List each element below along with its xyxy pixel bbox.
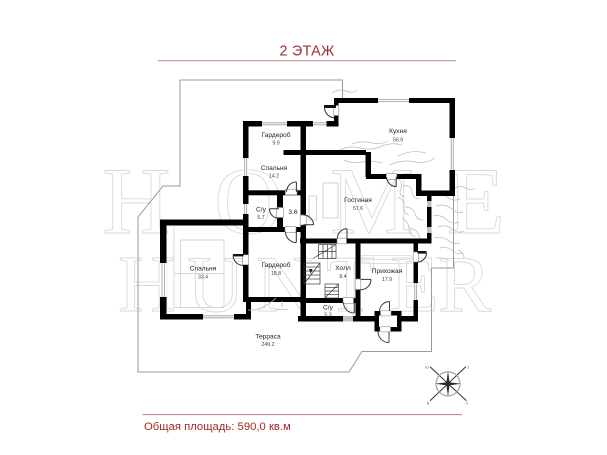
svg-text:С/у: С/у [323, 305, 334, 312]
svg-text:Гардероб: Гардероб [261, 261, 290, 269]
svg-text:8.4: 8.4 [339, 274, 346, 280]
svg-text:R: R [438, 241, 492, 329]
svg-text:Холл: Холл [335, 265, 351, 272]
svg-text:Гардероб: Гардероб [261, 131, 290, 139]
svg-text:56.9: 56.9 [393, 138, 403, 144]
svg-text:з: з [467, 365, 469, 370]
svg-text:2 ЭТАЖ: 2 ЭТАЖ [280, 43, 335, 59]
svg-text:Прихожая: Прихожая [372, 268, 403, 275]
svg-text:18.8: 18.8 [271, 271, 281, 277]
svg-text:Терраса: Терраса [255, 334, 281, 341]
svg-text:57.6: 57.6 [353, 206, 363, 212]
svg-text:Кухня: Кухня [389, 128, 407, 135]
svg-text:E: E [447, 148, 505, 254]
svg-text:14.2: 14.2 [269, 174, 279, 180]
svg-text:3.6: 3.6 [288, 209, 297, 216]
svg-text:17.9: 17.9 [382, 277, 392, 283]
svg-text:Спальня: Спальня [261, 165, 288, 172]
svg-text:5.3: 5.3 [324, 313, 331, 319]
svg-text:T: T [326, 241, 375, 329]
svg-text:5.7: 5.7 [257, 215, 264, 221]
svg-text:Гостиная: Гостиная [344, 197, 372, 204]
svg-text:Спальня: Спальня [190, 266, 217, 273]
svg-text:33.4: 33.4 [198, 275, 208, 281]
svg-text:9.9: 9.9 [272, 141, 279, 147]
svg-text:ю: ю [425, 365, 429, 370]
svg-text:249.2: 249.2 [262, 342, 275, 348]
svg-text:С/у: С/у [256, 207, 267, 214]
svg-text:Общая площадь: 590,0 кв.м: Общая площадь: 590,0 кв.м [144, 421, 291, 433]
